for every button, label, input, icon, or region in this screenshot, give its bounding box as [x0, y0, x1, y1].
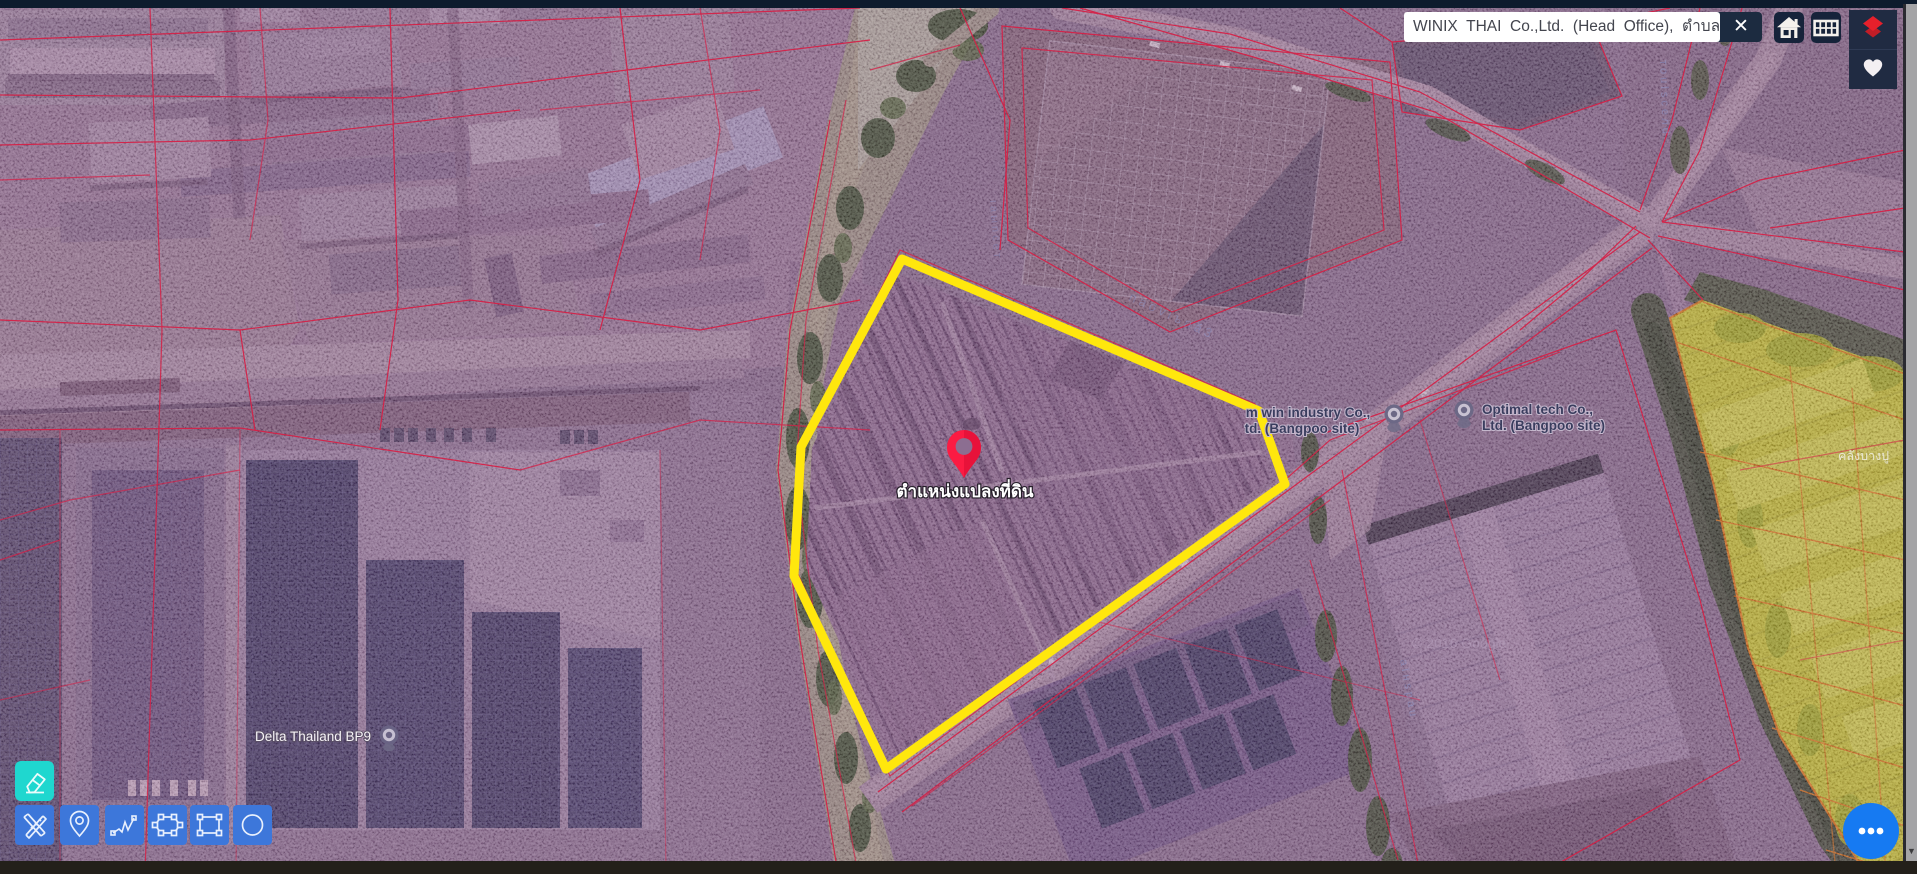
svg-text:ตำแหน่งแปลงที่ดิน: ตำแหน่งแปลงที่ดิน: [896, 479, 1033, 501]
svg-text:คลังบางปู: คลังบางปู: [1838, 449, 1889, 464]
svg-text:Optimal tech Co.,: Optimal tech Co.,: [1482, 402, 1593, 417]
svg-text:© 2016 Google: © 2016 Google: [1412, 635, 1507, 651]
svg-text:Delta Thailand BP9: Delta Thailand BP9: [255, 729, 371, 744]
svg-text:m win industry Co.,: m win industry Co.,: [1246, 405, 1371, 420]
svg-text:Ltd. (Bangpoo site): Ltd. (Bangpoo site): [1482, 418, 1605, 433]
svg-text:td. (Bangpoo site): td. (Bangpoo site): [1245, 421, 1360, 436]
